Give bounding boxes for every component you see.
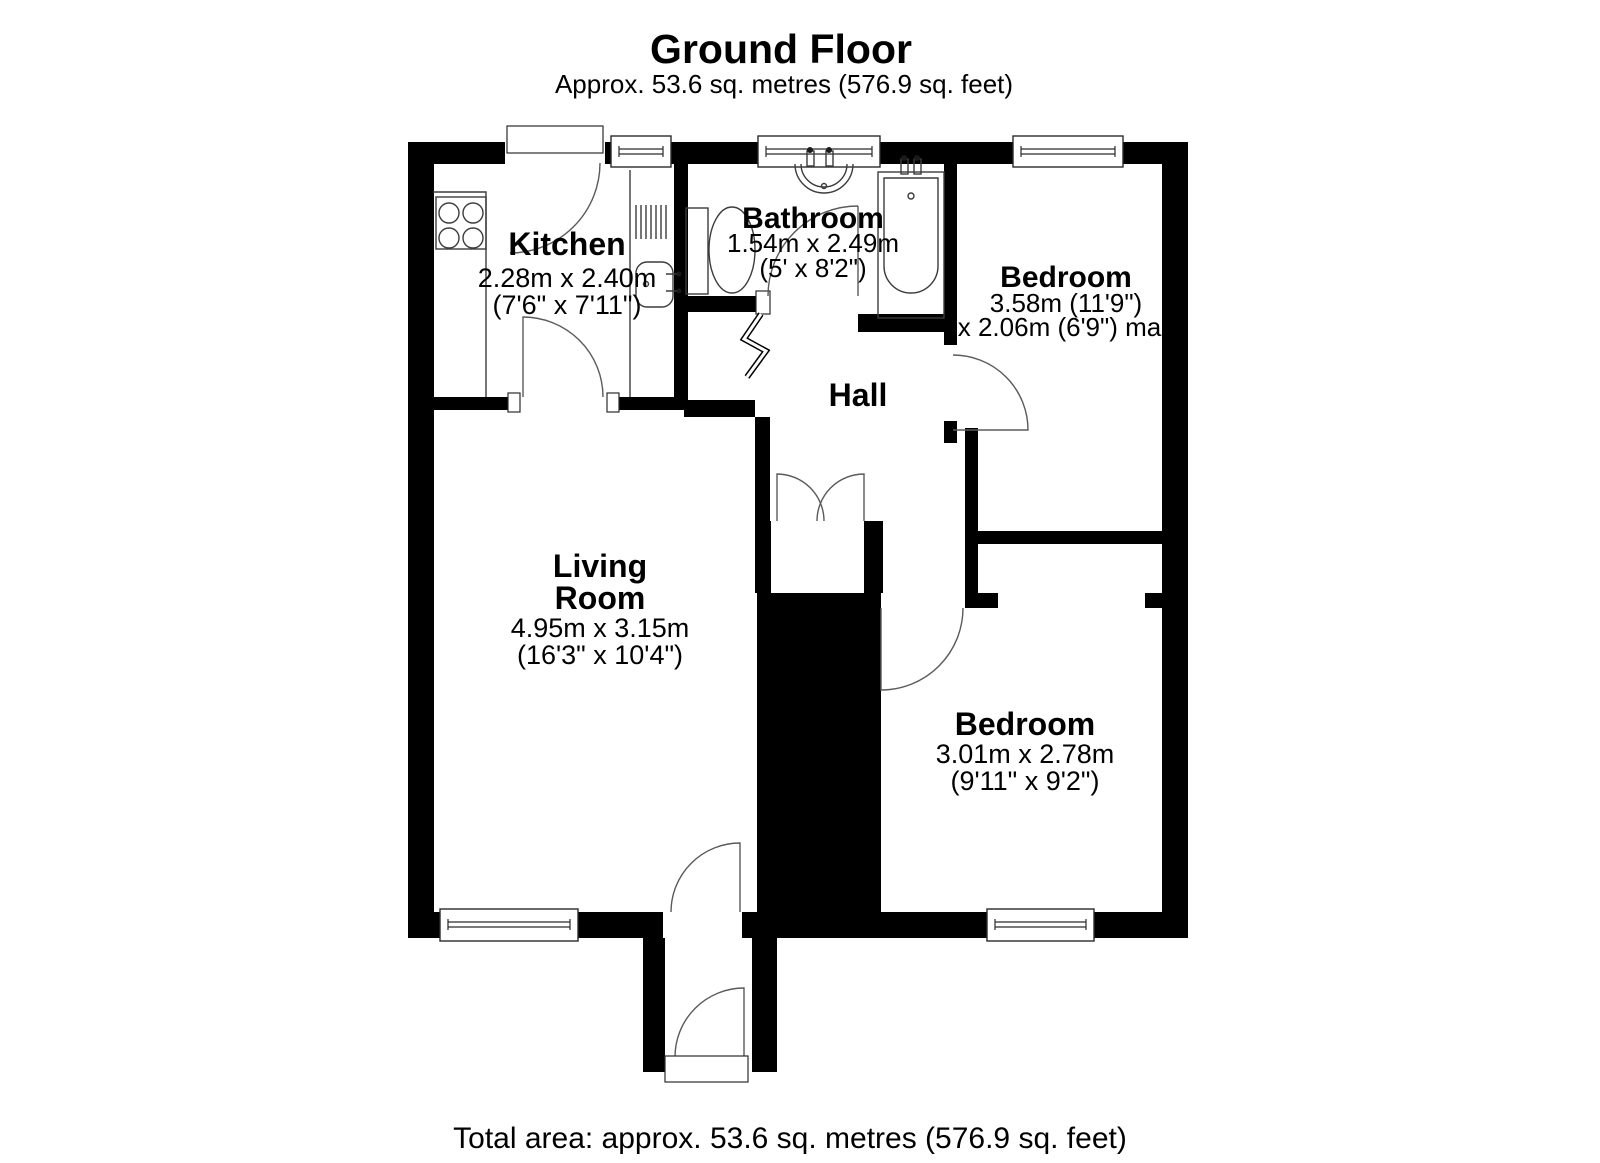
bedroom-top-door-symbol bbox=[953, 355, 1028, 430]
bedroom-top-window-symbol bbox=[1013, 136, 1123, 167]
living-room-label-line2: Room bbox=[555, 580, 646, 616]
wall-vestibule-left bbox=[643, 938, 665, 1072]
kitchen-label: Kitchen bbox=[508, 226, 625, 262]
wall-bathroom-bottom-right bbox=[858, 314, 956, 332]
wall-hall-living-horizontal bbox=[684, 400, 755, 417]
hall-label: Hall bbox=[829, 377, 888, 413]
kitchen-dims-metric: 2.28m x 2.40m bbox=[478, 263, 657, 293]
kitchen-living-door-symbol bbox=[508, 317, 619, 412]
living-room-dims-metric: 4.95m x 3.15m bbox=[511, 613, 690, 643]
floorplan-page: Ground Floor Approx. 53.6 sq. metres (57… bbox=[0, 0, 1600, 1163]
opening-vestibule bbox=[663, 912, 742, 938]
bedroom-bottom-window-symbol bbox=[987, 909, 1094, 941]
wall-kitchen-bottom-right bbox=[613, 397, 688, 410]
wall-right bbox=[1162, 142, 1188, 938]
living-vestibule-door-symbol bbox=[671, 843, 740, 912]
text-layer: Ground Floor Approx. 53.6 sq. metres (57… bbox=[453, 26, 1174, 1155]
bedroom-top-dims-line2: x 2.06m (6'9") max bbox=[958, 312, 1174, 342]
bathroom-window-symbol bbox=[758, 136, 880, 167]
radiator-symbol bbox=[744, 314, 766, 377]
living-room-dims-imperial: (16'3" x 10'4") bbox=[517, 640, 683, 670]
total-area-label: Total area: approx. 53.6 sq. metres (576… bbox=[453, 1122, 1127, 1155]
living-room-window-symbol bbox=[440, 909, 578, 941]
wall-hall-bedroom-vertical bbox=[965, 428, 978, 593]
wall-cupboard-left bbox=[755, 521, 771, 593]
wall-kitchen-bottom-left bbox=[433, 397, 518, 410]
wall-bathroom-bottom-left bbox=[688, 296, 758, 312]
page-title: Ground Floor bbox=[650, 26, 912, 72]
hob-symbol bbox=[436, 197, 486, 249]
wall-bathroom-bedroom-divider bbox=[944, 163, 957, 345]
living-room-label-line1: Living bbox=[553, 548, 647, 584]
wall-hall-living-vertical bbox=[755, 417, 770, 521]
bedroom-bottom-dims-imperial: (9'11" x 9'2") bbox=[950, 766, 1099, 796]
wall-hall-bedroom-foot bbox=[965, 593, 998, 608]
bedroom-bottom-dims-metric: 3.01m x 2.78m bbox=[936, 739, 1115, 769]
front-door-symbol bbox=[665, 988, 748, 1082]
solid-core-block bbox=[757, 593, 881, 938]
kitchen-window-symbol bbox=[611, 136, 671, 167]
bedroom-bottom-door-symbol bbox=[881, 608, 963, 690]
wall-stub-below-bedroom-door bbox=[944, 421, 957, 443]
wall-vestibule-right bbox=[752, 938, 777, 1072]
wall-left bbox=[408, 142, 434, 938]
bedroom-bottom-label: Bedroom bbox=[955, 706, 1095, 742]
kitchen-dims-imperial: (7'6" x 7'11") bbox=[492, 290, 641, 320]
wall-cupboard-right bbox=[864, 521, 883, 593]
wall-stub-right-bedroom bbox=[1145, 593, 1164, 608]
front-door-threshold bbox=[665, 1056, 748, 1082]
cupboard-double-door-symbol bbox=[777, 474, 864, 521]
page-subtitle: Approx. 53.6 sq. metres (576.9 sq. feet) bbox=[555, 69, 1013, 99]
floorplan-drawing: Ground Floor Approx. 53.6 sq. metres (57… bbox=[0, 0, 1600, 1163]
wall-between-bedrooms bbox=[978, 531, 1164, 544]
bathroom-dims-imperial: (5' x 8'2") bbox=[759, 253, 866, 283]
